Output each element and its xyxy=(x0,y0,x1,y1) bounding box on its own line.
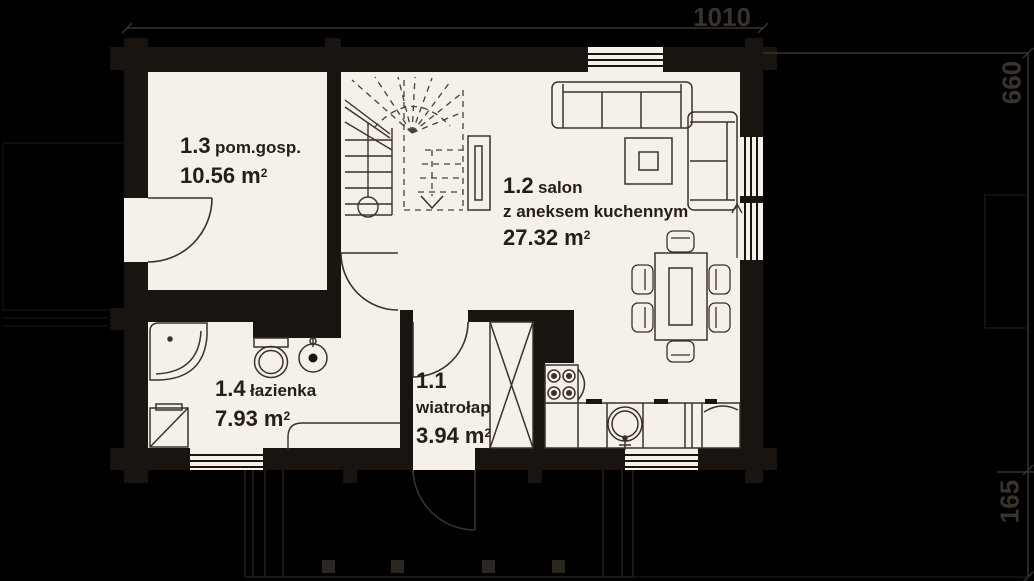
porch-posts xyxy=(322,560,565,573)
side-terrace-outline xyxy=(3,143,124,326)
washing-machine xyxy=(150,404,188,447)
stove xyxy=(545,365,585,403)
kitchen-sink xyxy=(608,407,642,450)
floor-plan: 1.3 pom.gosp. 10.56 m2 1.2 salon z aneks… xyxy=(0,0,1034,581)
door-bathroom xyxy=(341,253,398,310)
window-open-arrow xyxy=(732,204,742,258)
utility-room-label: 1.3 pom.gosp. 10.56 m2 xyxy=(180,134,301,191)
door-entrance xyxy=(413,470,475,530)
wardrobe xyxy=(490,322,533,448)
toilet xyxy=(254,338,288,378)
bathroom-label: 1.4 łazienka 7.93 m2 xyxy=(215,377,316,434)
sofa xyxy=(552,82,692,128)
staircase-arrow xyxy=(421,196,443,208)
radiator xyxy=(468,136,490,210)
corner-sofa xyxy=(688,112,737,210)
dimension-lines xyxy=(122,23,1034,581)
salon-label: 1.2 salon z aneksem kuchennym 27.32 m2 xyxy=(503,174,688,252)
bathtub xyxy=(150,323,207,380)
washbasin xyxy=(299,337,327,372)
dimension-width: 1010 xyxy=(672,2,772,33)
porch-outline xyxy=(245,470,633,577)
dining-table xyxy=(655,253,707,340)
fridge xyxy=(704,406,738,412)
door-utility xyxy=(148,198,212,262)
plan-linework xyxy=(0,0,1034,581)
dimension-height: 660 xyxy=(997,57,1028,109)
entry-hall-label: 1.1 wiatrołap 3.94 m2 xyxy=(416,369,491,451)
dimension-porch: 165 xyxy=(995,476,1026,528)
